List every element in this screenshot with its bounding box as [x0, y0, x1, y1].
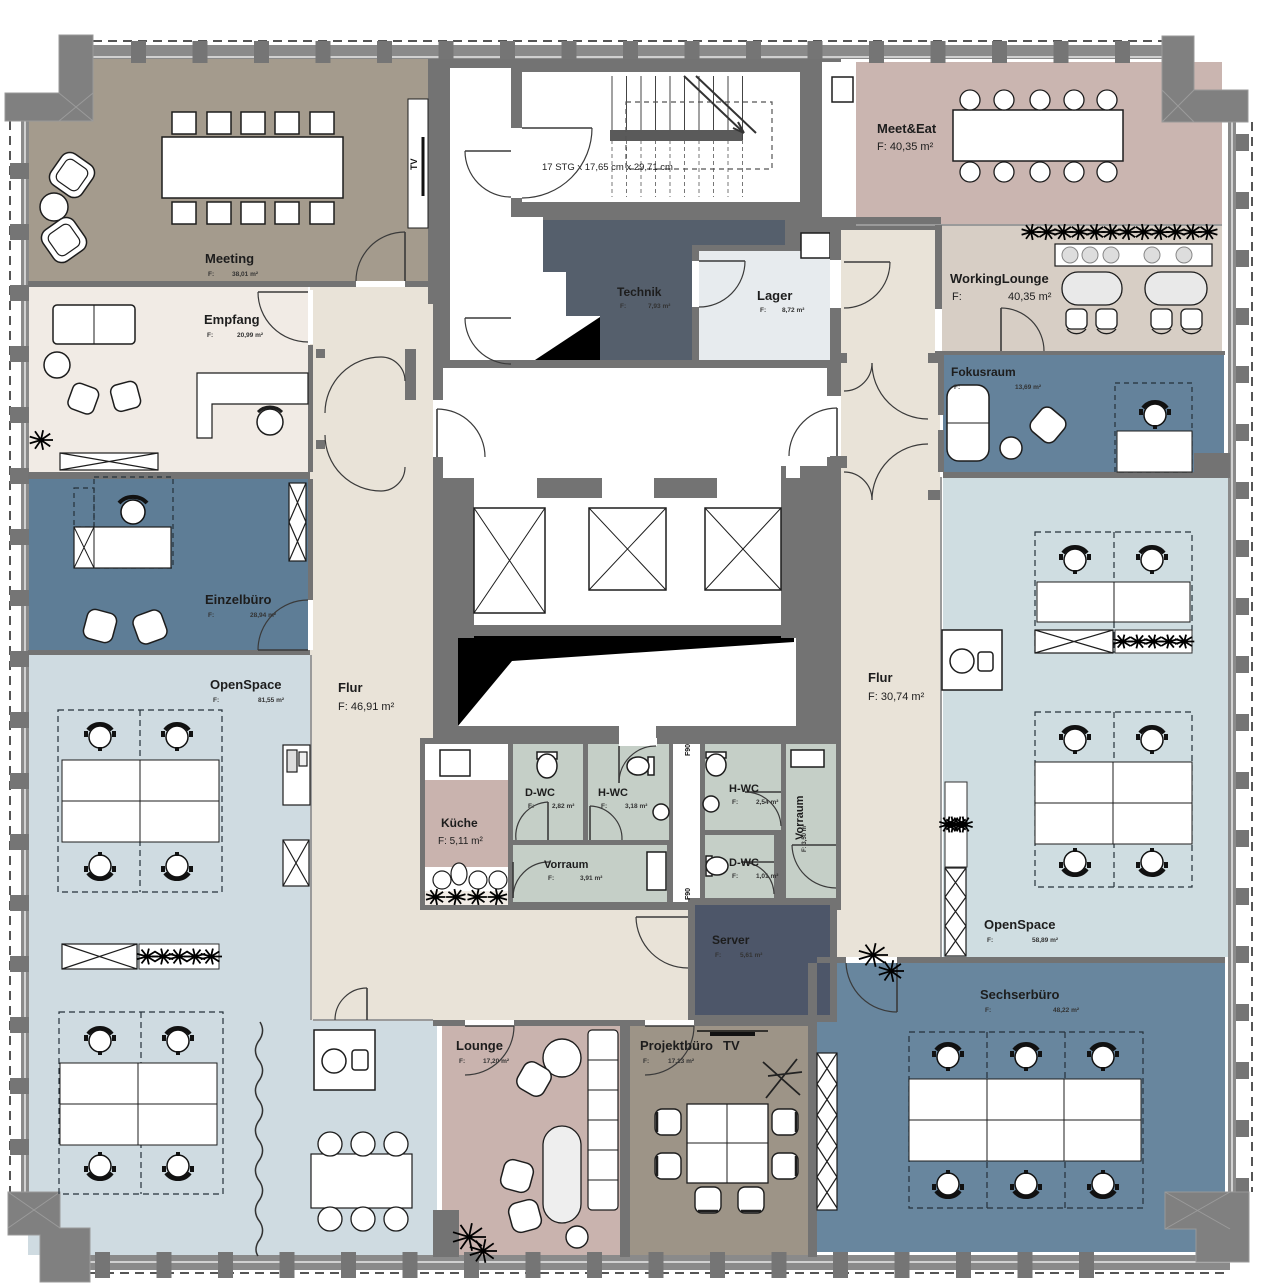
svg-text:40,35 m²: 40,35 m²	[1008, 291, 1052, 303]
svg-text:28,94 m²: 28,94 m²	[250, 612, 277, 619]
svg-text:D-WC: D-WC	[729, 857, 759, 869]
svg-text:Küche: Küche	[441, 816, 478, 830]
svg-text:F:: F:	[985, 1007, 991, 1014]
svg-text:H-WC: H-WC	[598, 787, 628, 799]
svg-text:F:: F:	[643, 1058, 649, 1065]
svg-text:38,01 m²: 38,01 m²	[232, 271, 259, 278]
svg-text:Vorraum: Vorraum	[544, 859, 589, 871]
svg-text:F:: F:	[601, 803, 607, 810]
svg-text:F:: F:	[528, 803, 534, 810]
svg-text:2,82 m²: 2,82 m²	[552, 803, 575, 810]
svg-text:F:: F:	[760, 307, 766, 314]
svg-text:3,91 m²: 3,91 m²	[580, 875, 603, 882]
svg-text:F: 40,35 m²: F: 40,35 m²	[877, 141, 934, 153]
svg-text:17,13 m²: 17,13 m²	[668, 1058, 695, 1065]
svg-text:F90: F90	[685, 744, 692, 756]
svg-text:OpenSpace: OpenSpace	[210, 677, 282, 692]
svg-text:F:: F:	[732, 873, 738, 880]
svg-text:OpenSpace: OpenSpace	[984, 917, 1056, 932]
svg-text:20,99 m²: 20,99 m²	[237, 332, 264, 339]
svg-text:Meeting: Meeting	[205, 251, 254, 266]
svg-text:F:: F:	[620, 303, 626, 310]
svg-text:Fokusraum: Fokusraum	[951, 365, 1016, 379]
svg-text:F:: F:	[459, 1058, 465, 1065]
svg-text:Meet&Eat: Meet&Eat	[877, 121, 937, 136]
svg-text:WorkingLounge: WorkingLounge	[950, 271, 1049, 286]
svg-text:F:: F:	[207, 332, 213, 339]
svg-text:1,01 m²: 1,01 m²	[756, 873, 779, 880]
svg-text:Empfang: Empfang	[204, 312, 260, 327]
svg-text:81,55 m²: 81,55 m²	[258, 697, 285, 704]
svg-text:Flur: Flur	[338, 680, 363, 695]
svg-text:F: 30,74 m²: F: 30,74 m²	[868, 691, 925, 703]
svg-text:F:: F:	[213, 697, 219, 704]
svg-text:Einzelbüro: Einzelbüro	[205, 592, 272, 607]
svg-text:F90: F90	[685, 888, 692, 900]
svg-text:Server: Server	[712, 933, 750, 947]
svg-text:7,93 m²: 7,93 m²	[648, 303, 671, 310]
svg-text:F:: F:	[208, 271, 214, 278]
svg-text:TV: TV	[723, 1038, 740, 1053]
svg-text:2,54 m²: 2,54 m²	[756, 799, 779, 806]
svg-text:13,69 m²: 13,69 m²	[1015, 384, 1042, 391]
svg-text:F:: F:	[987, 937, 993, 944]
svg-text:Projektbüro: Projektbüro	[640, 1038, 713, 1053]
svg-text:F:: F:	[732, 799, 738, 806]
svg-text:3,18 m²: 3,18 m²	[625, 803, 648, 810]
svg-text:TV: TV	[409, 158, 419, 170]
svg-text:Flur: Flur	[868, 670, 893, 685]
svg-text:D-WC: D-WC	[525, 787, 555, 799]
svg-text:Sechserbüro: Sechserbüro	[980, 987, 1060, 1002]
svg-text:5,61 m²: 5,61 m²	[740, 952, 763, 959]
svg-text:F:: F:	[715, 952, 721, 959]
svg-text:F:: F:	[954, 384, 960, 391]
svg-text:F:: F:	[208, 612, 214, 619]
svg-text:H-WC: H-WC	[729, 783, 759, 795]
svg-text:F:: F:	[952, 291, 962, 303]
svg-text:58,89 m²: 58,89 m²	[1032, 937, 1059, 944]
svg-text:F: 3,50 m²: F: 3,50 m²	[801, 824, 808, 852]
svg-text:48,22 m²: 48,22 m²	[1053, 1007, 1080, 1014]
svg-text:Lounge: Lounge	[456, 1038, 503, 1053]
svg-text:Lager: Lager	[757, 288, 792, 303]
svg-text:F: 46,91 m²: F: 46,91 m²	[338, 701, 395, 713]
svg-text:Technik: Technik	[617, 285, 662, 299]
svg-text:8,72 m²: 8,72 m²	[782, 307, 805, 314]
svg-text:F: 5,11 m²: F: 5,11 m²	[438, 836, 483, 847]
svg-text:F:: F:	[548, 875, 554, 882]
svg-text:17,20 m²: 17,20 m²	[483, 1058, 510, 1065]
svg-text:17 STG x 17,65 cm x 29,71 cm: 17 STG x 17,65 cm x 29,71 cm	[542, 162, 673, 173]
